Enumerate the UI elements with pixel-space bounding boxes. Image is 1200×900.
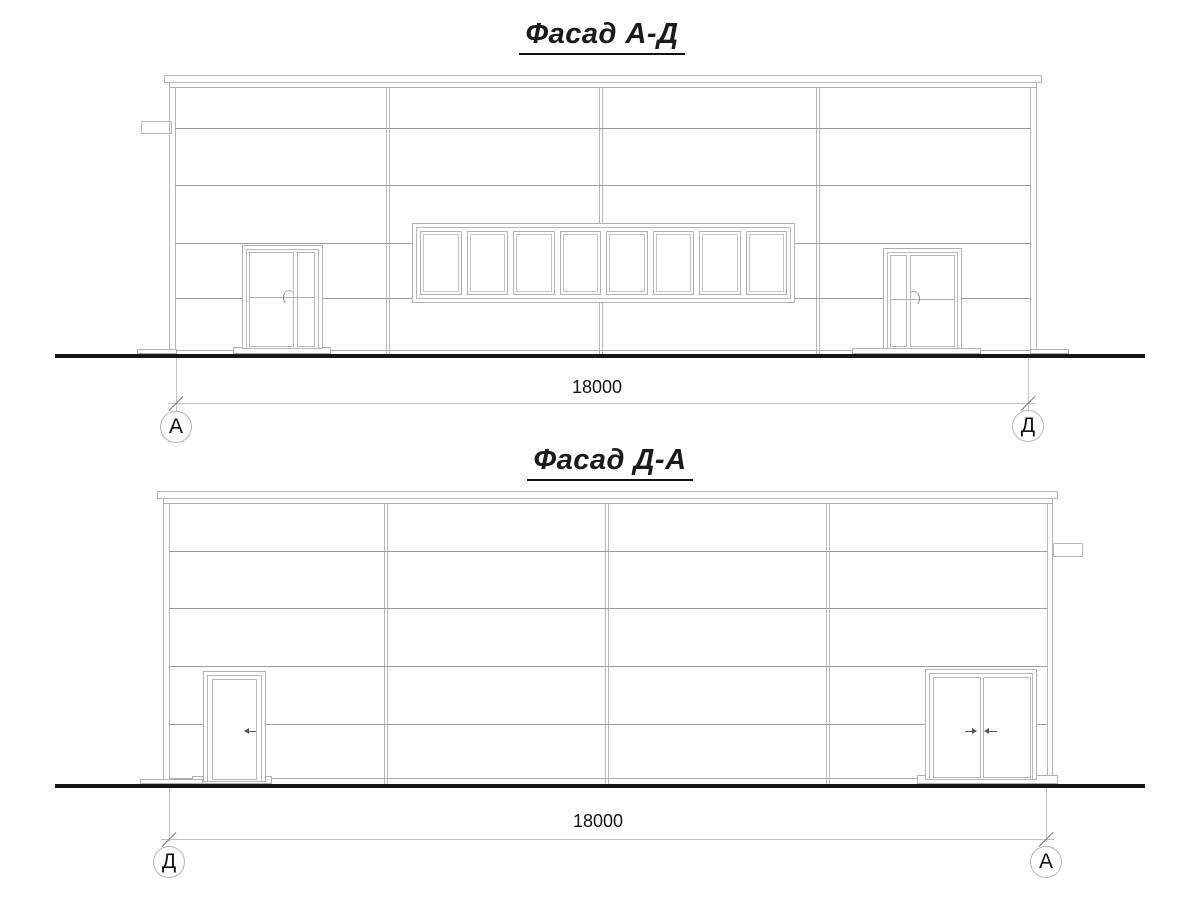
wall-inner-line-left <box>169 503 170 785</box>
wall-inner-line-right <box>1047 503 1048 785</box>
column-line <box>826 503 827 785</box>
ground-line <box>55 354 1145 358</box>
panel-joint-line <box>169 666 1047 667</box>
facade-da-title-text: Фасад Д-А <box>527 444 692 481</box>
panel-joint-line <box>175 128 1031 129</box>
drawing-sheet: Фасад А-Д 18000 А Д <box>0 0 1200 900</box>
column-line <box>605 503 606 785</box>
window-pane <box>560 231 602 295</box>
axis-marker-a: А <box>1030 846 1062 878</box>
door-handle-icon <box>283 290 295 305</box>
wall-protrusion-right <box>1053 543 1083 557</box>
panel-joint-line <box>169 608 1047 609</box>
axis-label: А <box>1039 850 1053 874</box>
door-handle-arrow-icon <box>972 728 977 734</box>
wall-top-line <box>170 87 1036 88</box>
window-pane-row <box>420 231 787 295</box>
column-line <box>608 503 609 785</box>
window-pane <box>653 231 695 295</box>
axis-label: Д <box>162 850 176 874</box>
panel-joint-line <box>175 185 1031 186</box>
window-pane <box>699 231 741 295</box>
door-mid-rail <box>891 299 954 300</box>
axis-label: Д <box>1021 414 1035 438</box>
window-pane <box>467 231 509 295</box>
window-pane <box>606 231 648 295</box>
door-leaf-narrow <box>297 252 315 347</box>
window-pane-glass <box>470 234 506 292</box>
window-pane-glass <box>609 234 645 292</box>
door-leaf-narrow <box>890 255 907 347</box>
window-pane <box>420 231 462 295</box>
ground-line <box>55 784 1145 788</box>
axis-label: А <box>169 415 183 439</box>
door-handle-arrow-icon <box>984 728 989 734</box>
extension-line <box>169 788 170 842</box>
window-pane-glass <box>516 234 552 292</box>
door-handle-arrow-icon <box>244 728 249 734</box>
window-pane-glass <box>749 234 785 292</box>
door-handle-icon <box>908 291 920 306</box>
plinth-line <box>169 778 1047 779</box>
facade-ad-title-text: Фасад А-Д <box>519 18 684 55</box>
door-mid-rail <box>250 297 314 298</box>
column-line <box>384 503 385 785</box>
column-line <box>387 503 388 785</box>
panel-joint-line <box>169 724 1047 725</box>
door-leaf <box>983 677 1031 778</box>
window-pane <box>513 231 555 295</box>
window-pane <box>746 231 788 295</box>
dimension-label: 18000 <box>537 377 657 398</box>
facade-da-title: Фасад Д-А <box>450 444 770 477</box>
axis-marker-d: Д <box>153 846 185 878</box>
door-leaf <box>212 679 257 780</box>
column-line <box>829 503 830 785</box>
window-pane-glass <box>423 234 459 292</box>
dimension-label: 18000 <box>538 811 658 832</box>
panel-joint-line <box>169 551 1047 552</box>
axis-marker-d: Д <box>1012 410 1044 442</box>
axis-marker-a: А <box>160 411 192 443</box>
wall-protrusion-left <box>141 121 172 134</box>
window-pane-glass <box>563 234 599 292</box>
facade-ad-title: Фасад А-Д <box>442 18 762 51</box>
dimension-line <box>168 403 1036 404</box>
window-pane-glass <box>702 234 738 292</box>
extension-line <box>1046 788 1047 842</box>
dimension-line <box>161 839 1054 840</box>
window-pane-glass <box>656 234 692 292</box>
